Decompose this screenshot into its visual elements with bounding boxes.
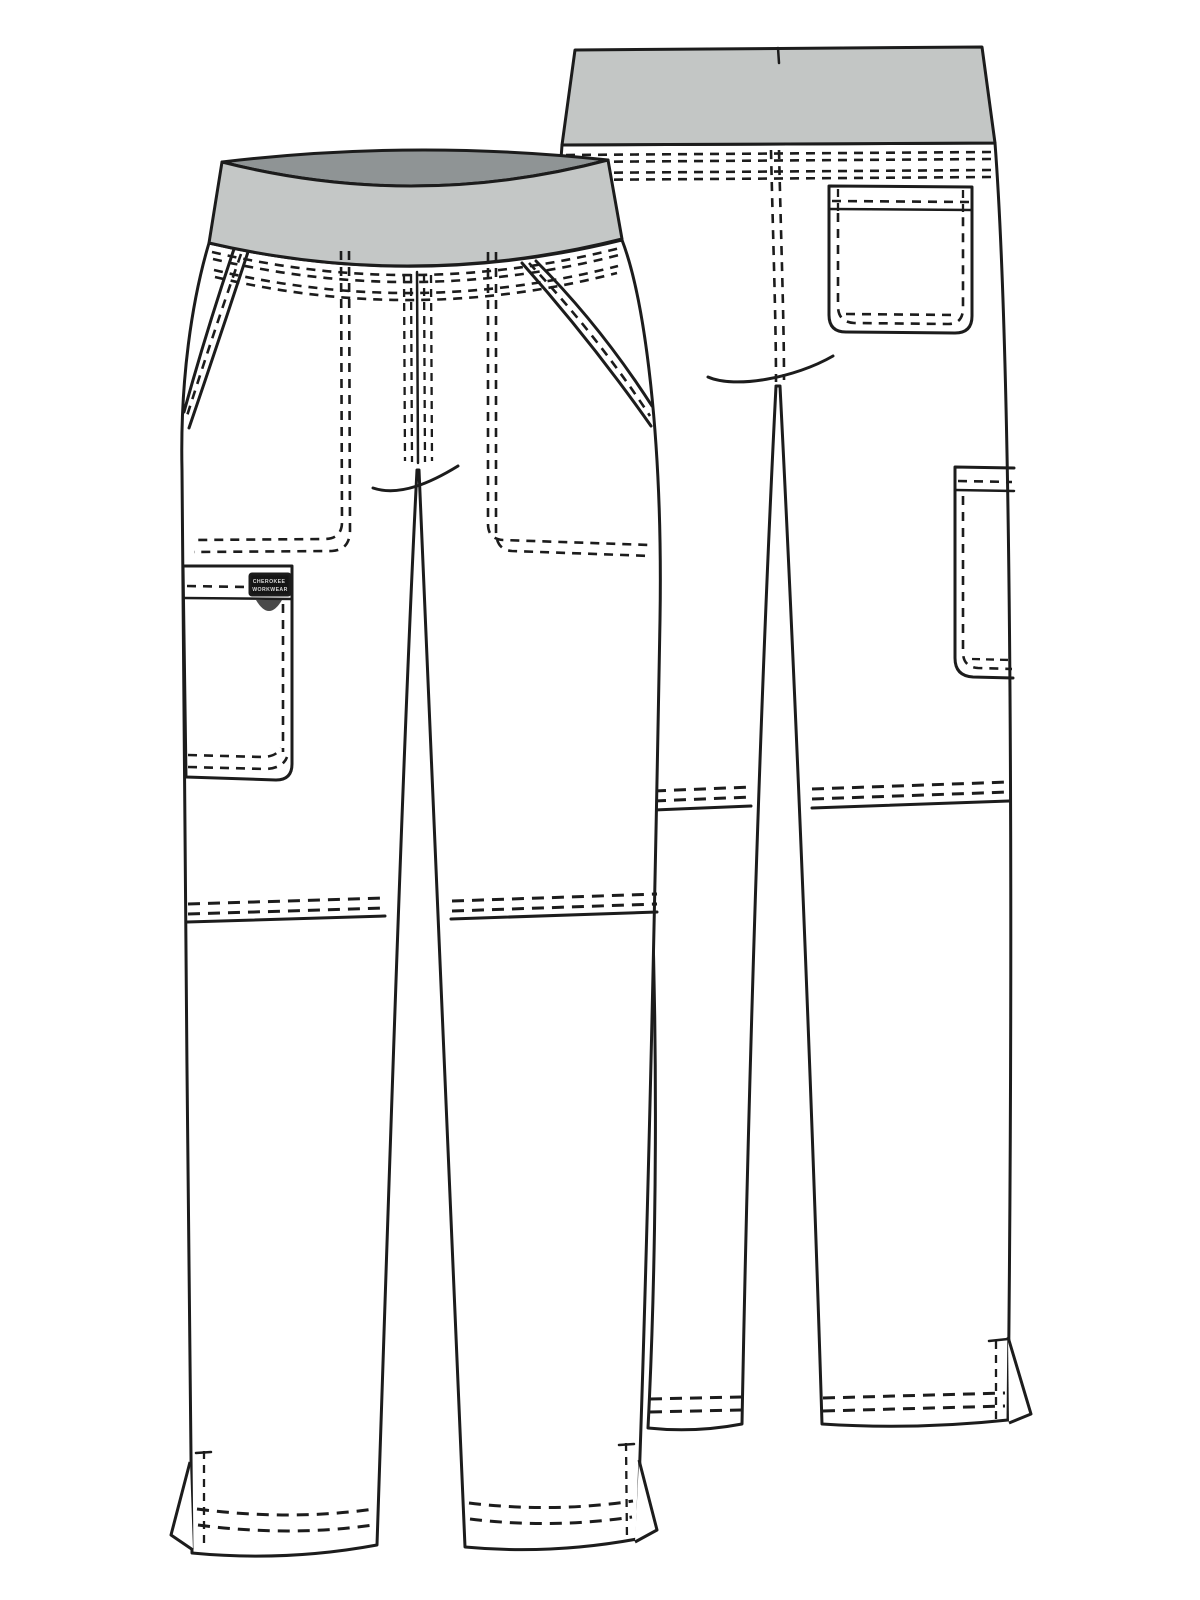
front-right-vent-tick: [619, 1444, 634, 1445]
center-front-seam-line: [417, 272, 418, 463]
brand-label-line1: CHEROKEE: [253, 579, 286, 585]
back-side-pocket-bottom-stitch: [972, 659, 1011, 660]
flat-sketch-canvas: CHEROKEE WORKWEAR: [0, 0, 1200, 1600]
front-body: [182, 240, 661, 1556]
front-left-vent-tick: [196, 1452, 211, 1453]
cargo-pocket-band-line: [184, 598, 292, 599]
front-left-vent-flap: [171, 1462, 193, 1550]
back-right-vent-flap: [1008, 1337, 1031, 1423]
back-patch-pocket-band-line: [829, 209, 972, 210]
back-patch-pocket-band-stitch: [832, 201, 969, 202]
brand-label-line2: WORKWEAR: [252, 587, 287, 593]
scrub-pant-flat-sketch: CHEROKEE WORKWEAR: [0, 0, 1200, 1600]
front-view: CHEROKEE WORKWEAR: [171, 150, 660, 1556]
back-waistband-notch: [778, 48, 779, 63]
back-side-pocket-band-line: [955, 490, 1014, 491]
